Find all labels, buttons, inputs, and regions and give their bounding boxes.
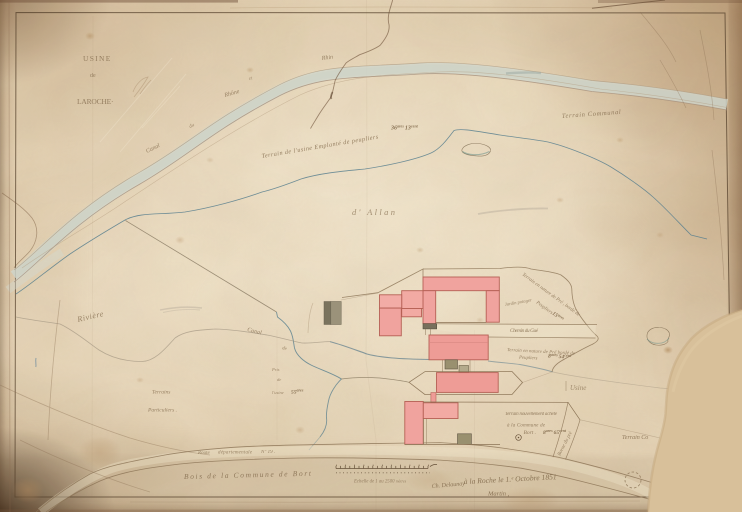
svg-text:Canal: Canal [247, 327, 263, 336]
svg-text:LAROCHE·: LAROCHE· [77, 97, 114, 106]
svg-text:Canal: Canal [145, 143, 161, 155]
svg-text:Chemin du Gué: Chemin du Gué [510, 328, 539, 334]
svg-text:Bois de la Commune de Bor: Bois de la Commune de Bort [184, 469, 312, 481]
svg-text:de: de [90, 73, 96, 79]
svg-text:15ares: 15ares [551, 309, 566, 323]
svg-text:de: de [282, 346, 289, 352]
svg-text:Peupliers: Peupliers [534, 300, 553, 316]
svg-text:Particuliers .: Particuliers . [147, 408, 177, 414]
svg-text:Terrains: Terrains [152, 390, 170, 396]
svg-text:Route: Route [197, 451, 210, 456]
svg-text:à la Commune de: à la Commune de [507, 424, 546, 429]
svg-text:Peupliers: Peupliers [518, 355, 538, 361]
svg-text:Pris: Pris [271, 367, 280, 372]
svg-text:Rivière: Rivière [75, 309, 104, 324]
svg-text:Martin ,: Martin , [487, 491, 510, 498]
svg-text:Usine: Usine [570, 384, 586, 392]
svg-text:Terrain Communal: Terrain Communal [562, 109, 622, 120]
svg-text:départementale: départementale [218, 451, 253, 456]
svg-text:8ares65cent: 8ares65cent [543, 428, 567, 436]
svg-text:USINE: USINE [83, 54, 112, 63]
svg-text:à la Roche le 1.ᵉ Octobre 185: à la Roche le 1.ᵉ Octobre 1851 [464, 472, 557, 486]
svg-text:Rhône: Rhône [223, 89, 241, 99]
svg-text:l'usine: l'usine [272, 390, 284, 395]
svg-text:Terrain nouvellement acheté: Terrain nouvellement acheté [505, 412, 558, 417]
svg-text:du: du [189, 123, 196, 130]
svg-text:d' Allan: d' Allan [352, 207, 396, 217]
svg-text:Bort .: Bort . [524, 430, 537, 436]
svg-text:Rhin: Rhin [320, 54, 333, 62]
svg-text:Borne du pré: Borne du pré [557, 430, 574, 456]
svg-text:Jardin potager: Jardin potager [504, 297, 532, 307]
svg-text:Terrain de l'usine Emplanté de: Terrain de l'usine Emplanté de peupliers [261, 133, 379, 159]
svg-text:Echelle de 1 au 2500 mètres: Echelle de 1 au 2500 mètres [353, 479, 407, 485]
svg-text:N° 19 .: N° 19 . [260, 450, 275, 455]
svg-text:Terrain Co: Terrain Co [622, 435, 648, 441]
svg-text:de: de [277, 377, 281, 382]
svg-text:Ch. Delaunay: Ch. Delaunay [431, 481, 465, 490]
svg-text:36ares13cent: 36ares13cent [390, 124, 419, 132]
svg-text:55ares: 55ares [291, 388, 304, 396]
svg-text:et: et [248, 76, 253, 82]
